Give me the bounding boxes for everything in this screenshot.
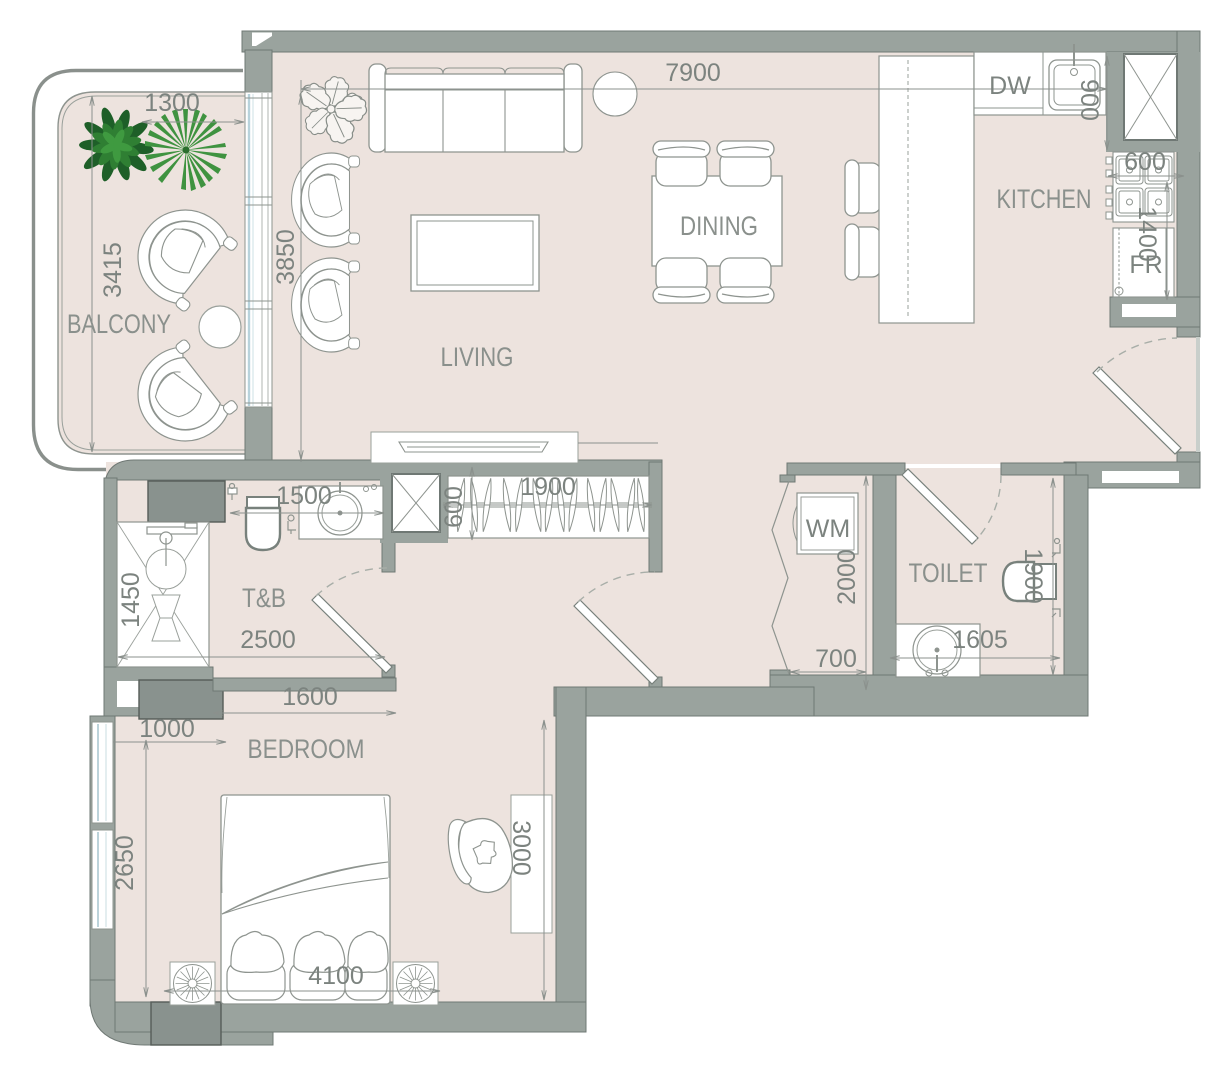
svg-text:BALCONY: BALCONY [67, 309, 171, 339]
svg-text:1500: 1500 [276, 482, 332, 510]
svg-text:DW: DW [989, 72, 1031, 100]
svg-text:KITCHEN: KITCHEN [997, 184, 1092, 214]
svg-text:1605: 1605 [952, 626, 1008, 654]
svg-text:700: 700 [815, 645, 857, 673]
svg-text:2000: 2000 [833, 549, 861, 605]
svg-text:T&B: T&B [242, 583, 286, 613]
svg-text:DINING: DINING [680, 211, 758, 241]
svg-text:4100: 4100 [308, 962, 364, 990]
svg-text:3850: 3850 [272, 229, 300, 285]
svg-text:1300: 1300 [144, 89, 200, 117]
svg-text:600: 600 [1124, 148, 1166, 176]
svg-text:7900: 7900 [665, 59, 721, 87]
svg-text:1600: 1600 [282, 683, 338, 711]
svg-text:600: 600 [440, 486, 468, 528]
svg-text:2500: 2500 [240, 626, 296, 654]
svg-text:3415: 3415 [99, 242, 127, 298]
svg-text:2650: 2650 [111, 835, 139, 891]
svg-text:LIVING: LIVING [441, 342, 514, 372]
svg-text:WM: WM [806, 515, 850, 543]
svg-text:1000: 1000 [139, 715, 195, 743]
svg-text:900: 900 [1075, 79, 1103, 121]
svg-text:1900: 1900 [520, 473, 576, 501]
svg-text:1400: 1400 [1133, 206, 1161, 262]
svg-text:3000: 3000 [507, 820, 535, 876]
svg-text:TOILET: TOILET [909, 558, 988, 588]
svg-text:BEDROOM: BEDROOM [248, 734, 365, 764]
svg-text:1450: 1450 [117, 572, 145, 628]
svg-text:1900: 1900 [1019, 548, 1047, 604]
